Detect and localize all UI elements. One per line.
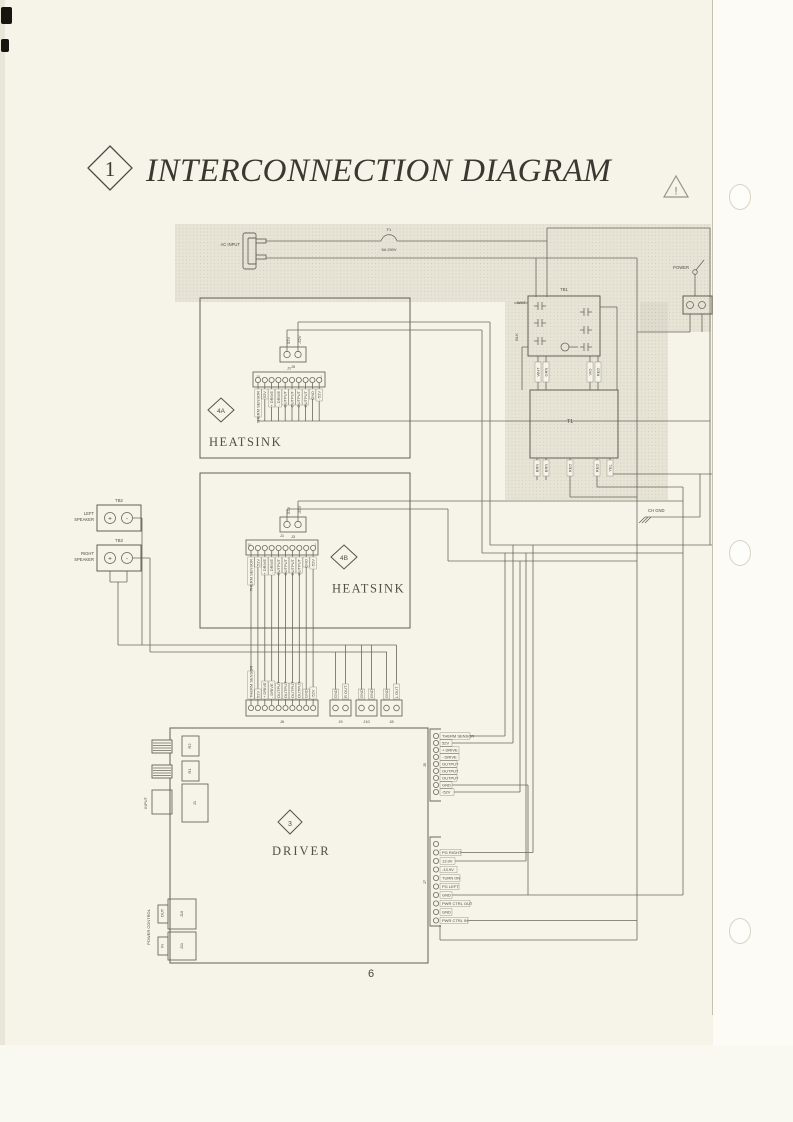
tb1-wht-label: WHT xyxy=(517,300,527,305)
connector-j3-label: J3 xyxy=(291,534,296,539)
j5-pin-label: -52V xyxy=(297,335,302,344)
j5-pin-label: -52V xyxy=(442,789,451,794)
binder-hole-top xyxy=(730,185,751,210)
connector-j10-mid-label: J10 xyxy=(363,719,370,724)
j6-pin-label: OUTPUT xyxy=(276,681,281,698)
input-conn-label: J1 xyxy=(192,800,197,805)
j7-pin-label: PWR CTRL IN xyxy=(442,918,468,923)
tb1-wire-label: VIO xyxy=(587,369,592,376)
j1-pin-label: OUTPUT xyxy=(283,390,288,407)
j7-pin-label: GND xyxy=(442,892,451,897)
connector-j1-4a xyxy=(253,372,325,387)
j1-pin-label: - DRIVE xyxy=(276,391,281,406)
driver-badge: 3 xyxy=(288,821,292,828)
j5-pin-label: GND xyxy=(442,782,451,787)
j5-pin-label: + DRIVE xyxy=(442,747,458,752)
plus-terminal: + xyxy=(108,516,112,523)
j1-pin-label: OUTPUT xyxy=(297,558,302,575)
j5-pin-label: - DRIVE xyxy=(442,754,457,759)
heatsink-4a-title: HEATSINK xyxy=(209,435,282,449)
connector-j5-label: J5 xyxy=(291,364,296,369)
j1-pin-label: THERM SENSOR xyxy=(255,391,260,423)
tb1-wire-label: GRN xyxy=(543,367,548,376)
j6-pin-label: OUTPUT xyxy=(283,681,288,698)
j7-pin-label: PG RIGHT xyxy=(442,850,462,855)
j8-pin-label: L OUT xyxy=(394,686,399,698)
heatsink-4b: 4B HEATSINK J3 52V -52V J1 10 1 THERM SE… xyxy=(200,473,410,628)
t1-wire-label: BRN xyxy=(534,464,539,473)
connector-j8 xyxy=(381,700,402,716)
binder-hole-middle xyxy=(730,541,751,566)
scan-mark-top xyxy=(1,7,12,24)
power-control-label: POWER CONTROL xyxy=(146,908,151,945)
j10-pin-label: GND xyxy=(359,689,364,698)
tb1-blk-label: BLK xyxy=(514,333,519,341)
title-block: 1 INTERCONNECTION DIAGRAM ! xyxy=(88,146,688,198)
j1-pin-label: 52V xyxy=(255,559,260,566)
j1-pin-label: GND xyxy=(304,559,309,568)
j1-pin-label: -52V xyxy=(317,391,322,400)
j5-pin-label: OUTPUT xyxy=(442,775,459,780)
j7-pin-label: TURN ON xyxy=(442,875,460,880)
j6-pin-label: - DRIVE xyxy=(269,683,274,698)
driver-title: DRIVER xyxy=(272,844,331,858)
j1-pin-label: -52V xyxy=(311,559,316,568)
j8-pin-label: GND xyxy=(384,689,389,698)
power-switch-label: POWER xyxy=(673,265,689,270)
j7-pin-label: -13.9V xyxy=(442,867,454,872)
chassis-ground-label: CH GND xyxy=(648,508,665,513)
j6-pin-label: 52V xyxy=(255,691,260,698)
t1-wire-label: RED xyxy=(567,464,572,473)
heatsink-4a-badge: 4A xyxy=(217,408,226,415)
j1-pin-label: OUTPUT xyxy=(283,558,288,575)
j3-pin-label: -52V xyxy=(297,505,302,514)
j1-pin-label: - DRIVE xyxy=(269,559,274,574)
in-conn-label: J11 xyxy=(179,942,184,949)
j5-pin-label: 52V xyxy=(286,337,291,344)
j5-pin-label: THERM SENSOR xyxy=(442,733,474,738)
interconnection-diagram: 1 INTERCONNECTION DIAGRAM ! AC INPUT F1 … xyxy=(0,0,793,1122)
j1-pin-label: OUTPUT xyxy=(289,390,294,407)
connector-j9 xyxy=(330,700,351,716)
j1-pin-label: + DRIVE xyxy=(262,559,267,575)
j1-pin-label: THERM SENSOR xyxy=(248,559,253,591)
page-number: 6 xyxy=(368,968,374,980)
j5-pin-label: OUTPUT xyxy=(442,768,459,773)
j7-pin-label: PWR CTRL OUT xyxy=(442,901,473,906)
j7-pin-label: GND xyxy=(442,909,451,914)
j1-pin-label: OUTPUT xyxy=(303,390,308,407)
left-speaker-label: SPEAKER xyxy=(74,517,94,522)
left-speaker-label: LEFT xyxy=(84,511,95,516)
r1-label: R1 xyxy=(187,768,192,774)
plus-terminal: + xyxy=(108,556,112,563)
connector-j9-label: J9 xyxy=(338,719,343,724)
j6-pin-label: OUTPUT xyxy=(290,681,295,698)
minus-terminal: - xyxy=(126,556,128,563)
r1-trimmer-knob[interactable] xyxy=(152,765,172,778)
warning-mark: ! xyxy=(674,186,677,198)
input-jack[interactable] xyxy=(152,790,172,814)
tb1-wire-label: WHT xyxy=(535,367,540,377)
j10-pin-label: GND xyxy=(369,689,374,698)
j7-pin-label: PG LEFT xyxy=(442,884,459,889)
j1-pin-label: OUTPUT xyxy=(276,558,281,575)
scan-mark-bottom xyxy=(1,39,9,52)
connector-j5-driver xyxy=(430,729,441,801)
heatsink-4b-title: HEATSINK xyxy=(332,582,405,596)
in-label: IN xyxy=(160,944,165,948)
right-speaker-label: SPEAKER xyxy=(74,557,94,562)
right-speaker-label: RIGHT xyxy=(81,551,94,556)
connector-j6 xyxy=(246,700,318,716)
tb1-label: TB1 xyxy=(560,287,568,292)
j6-pin-label: THERM SENSOR xyxy=(248,666,253,698)
input-label: INPUT xyxy=(143,796,148,809)
j5-pin-label: 52V xyxy=(442,740,449,745)
minus-terminal: - xyxy=(126,516,128,523)
t1-label: T1 xyxy=(567,419,573,425)
tb1-wire-label: RED xyxy=(595,368,600,377)
connector-j1-4b xyxy=(246,540,318,555)
j7-pin-label: 13.9V xyxy=(442,858,453,863)
j1-pin-label: + DRIVE xyxy=(269,391,274,407)
j6-pin-label: -52V xyxy=(311,689,316,698)
out-label: OUT xyxy=(160,908,165,917)
t1-wire-label: RED xyxy=(594,464,599,473)
r2-label: R2 xyxy=(187,743,192,749)
connector-j5-driver-label: J5 xyxy=(422,762,427,767)
section-number: 1 xyxy=(105,157,116,181)
j1-pin-label: GND xyxy=(310,391,315,400)
j6-pin-label: OUTPUT xyxy=(297,681,302,698)
j1-pin-label: OUTPUT xyxy=(290,558,295,575)
fuse-designator: F1 xyxy=(387,227,392,232)
j3-pin-label: 52V xyxy=(286,507,291,514)
driver-board: 3 DRIVER J6 THERM SENSOR 52V + DRIVE - D… xyxy=(143,666,474,963)
fuse-rating: 5A 250V xyxy=(381,247,396,252)
ac-input-label: AC INPUT xyxy=(220,242,240,247)
connector-j8-label: J8 xyxy=(389,719,394,724)
out-conn-label: J10 xyxy=(179,910,184,917)
scanned-page: 1 INTERCONNECTION DIAGRAM ! AC INPUT F1 … xyxy=(0,0,793,1122)
j1-pin-label: OUTPUT xyxy=(296,390,301,407)
connector-j6-label: J6 xyxy=(280,719,285,724)
j1-pin-label: 52V xyxy=(262,391,267,398)
j5-pin-label: OUTPUT xyxy=(442,761,459,766)
speaker-terminals: TB2 LEFT SPEAKER + - TB3 RIGHT SPEAKER +… xyxy=(74,498,141,571)
connector-j10-mid xyxy=(356,700,377,716)
heatsink-4b-badge: 4B xyxy=(340,555,348,562)
j6-pin-label: + DRIVE xyxy=(262,682,267,698)
t1-wire-label: YEL xyxy=(607,463,612,471)
j9-pin-label: GND xyxy=(333,689,338,698)
page-title: INTERCONNECTION DIAGRAM xyxy=(145,153,612,189)
j6-pin-label: GND xyxy=(304,689,309,698)
r2-trimmer-knob[interactable] xyxy=(152,740,172,753)
t1-wire-label: BRN xyxy=(543,464,548,473)
connector-j7-label: J7 xyxy=(422,879,427,884)
j9-pin-label: R OUT xyxy=(343,685,348,698)
binder-hole-bottom xyxy=(730,919,751,944)
tb2-label: TB2 xyxy=(115,498,123,503)
tb3-label: TB3 xyxy=(115,538,123,543)
connector-j1-4b-label: J1 xyxy=(280,533,285,538)
